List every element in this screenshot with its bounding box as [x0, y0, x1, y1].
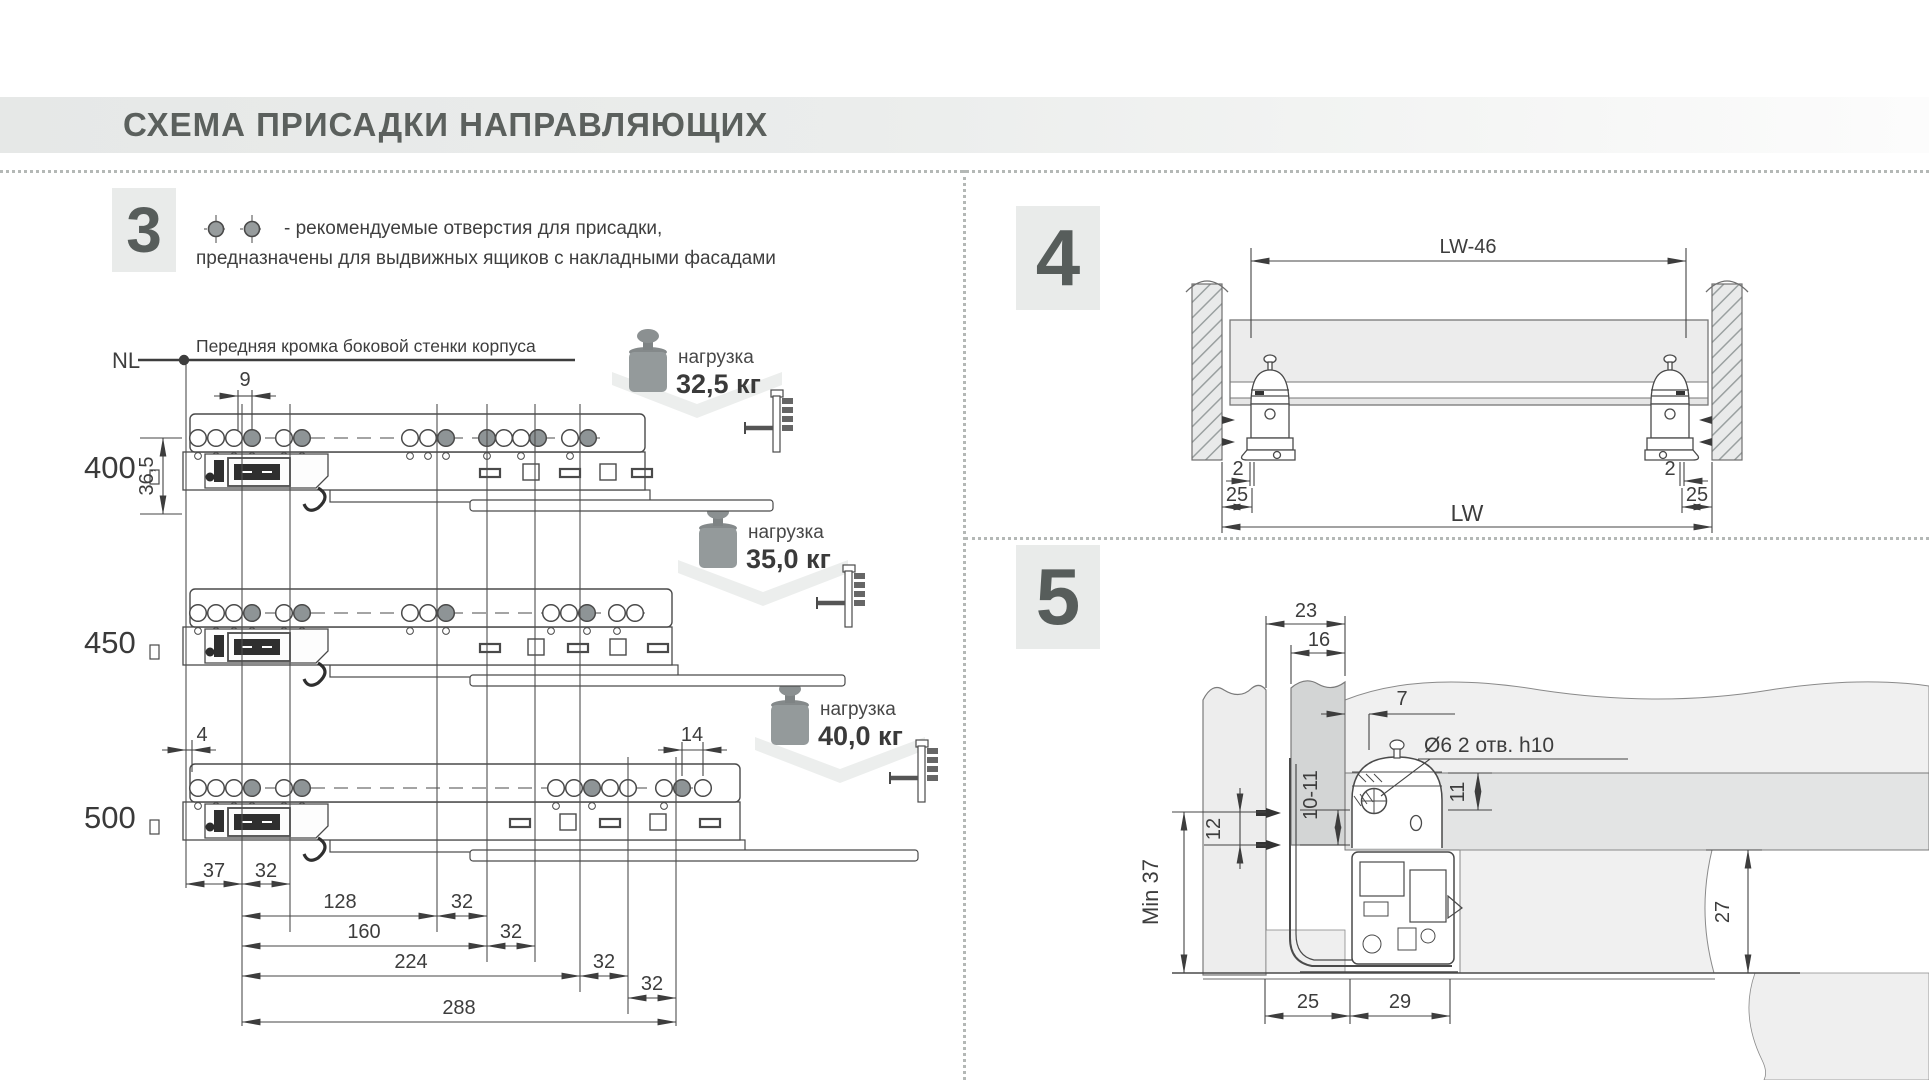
wall-screws	[1222, 416, 1712, 446]
dim-32: 32	[500, 921, 522, 943]
dim-25: 25	[1686, 484, 1708, 506]
load-badge-32-5: нагрузка 32,5 кг	[612, 329, 782, 418]
front-edge: NL Передняя кромка боковой стенки корпус…	[112, 336, 575, 373]
dim-lw: LW	[1451, 500, 1484, 526]
dim-10-11: 10-11	[1300, 770, 1322, 820]
dim-128: 128	[323, 891, 356, 913]
dim-160: 160	[347, 921, 380, 943]
load-badge-35-0: нагрузка 35,0 кг	[678, 505, 848, 606]
page-title: СХЕМА ПРИСАДКИ НАПРАВЛЯЮЩИХ	[123, 106, 768, 144]
dim-25: 25	[1226, 484, 1248, 506]
row-length-400: 400	[84, 450, 136, 485]
latch-mechanism	[150, 454, 328, 510]
panel-bottom-right	[1749, 973, 1929, 1080]
load-badge-40-0: нагрузка 40,0 кг	[755, 682, 925, 783]
row-length-450: 450	[84, 625, 136, 660]
dim-32: 32	[641, 973, 663, 995]
dim-14: 14	[681, 724, 703, 746]
dim-25: 25	[1297, 991, 1319, 1013]
drawer-cross-section	[1230, 320, 1708, 405]
nl-label: NL	[112, 348, 140, 373]
front-view-diagram: LW-46 2 2 25 25 LW	[965, 172, 1929, 537]
slide-row-450	[150, 565, 865, 686]
latch-mechanism	[150, 629, 328, 685]
dim-37: 37	[203, 860, 225, 882]
latch-mechanism	[150, 804, 328, 860]
dim-2: 2	[1664, 458, 1675, 480]
dim-32: 32	[255, 860, 277, 882]
dim-32: 32	[451, 891, 473, 913]
dim-9: 9	[239, 369, 250, 391]
dim-11: 11	[1447, 782, 1469, 803]
dimensions	[1222, 248, 1712, 533]
page: СХЕМА ПРИСАДКИ НАПРАВЛЯЮЩИХ 3 4 5 - реко…	[0, 0, 1929, 1080]
slide-row-500	[150, 740, 938, 861]
dim-7: 7	[1396, 688, 1407, 710]
dim-224: 224	[394, 951, 427, 973]
dim-23: 23	[1295, 600, 1317, 622]
dim-12: 12	[1203, 818, 1225, 840]
dim-29: 29	[1389, 991, 1411, 1013]
load-label: нагрузка	[678, 347, 754, 368]
dim-2: 2	[1232, 458, 1243, 480]
side-detail-diagram: 23 16 7 Ø6 2 отв. h10 10-11 11 12 Min 37…	[965, 540, 1929, 1080]
load-value: 35,0 кг	[746, 544, 831, 574]
load-label: нагрузка	[748, 522, 824, 543]
drilling-scheme-diagram: нагрузка 32,5 кг нагрузка 35,0 кг нагруз…	[0, 170, 965, 1080]
row-length-500: 500	[84, 800, 136, 835]
dim-32: 32	[593, 951, 615, 973]
hole-spec-note: Ø6 2 отв. h10	[1424, 734, 1554, 757]
rear-panel-lower	[1460, 850, 1714, 973]
load-value: 32,5 кг	[676, 369, 761, 399]
dim-min-37: Min 37	[1138, 859, 1163, 925]
panels	[1203, 681, 1929, 1080]
load-label: нагрузка	[820, 699, 896, 720]
dim-16: 16	[1308, 629, 1330, 651]
front-edge-note: Передняя кромка боковой стенки корпуса	[196, 336, 536, 356]
dim-lw46: LW-46	[1439, 236, 1496, 258]
rear-bracket	[745, 390, 793, 452]
dim-288: 288	[442, 997, 475, 1019]
dim-27: 27	[1712, 901, 1734, 923]
dim-4: 4	[196, 724, 207, 746]
dim-36-5: 36,5	[136, 457, 158, 496]
load-value: 40,0 кг	[818, 721, 903, 751]
